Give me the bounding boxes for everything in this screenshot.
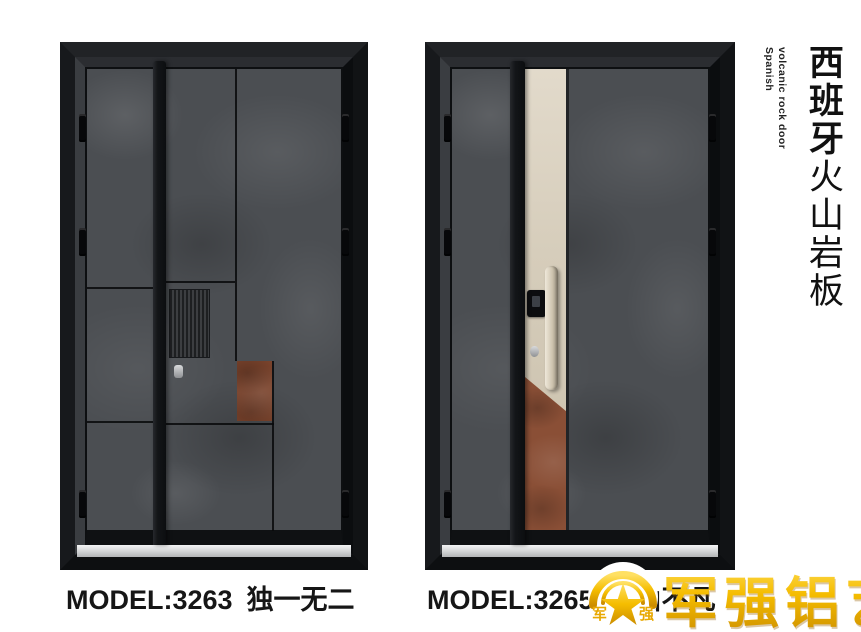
panel-seam bbox=[235, 69, 237, 361]
rust-lower-panel bbox=[525, 377, 566, 530]
hinge bbox=[709, 114, 716, 142]
emblem-char-left: 军 bbox=[592, 606, 607, 623]
hinge bbox=[342, 114, 349, 142]
brand-name: 军强铝艺 bbox=[663, 558, 861, 632]
side-label-zh-regular: 火山岩板 bbox=[804, 158, 843, 310]
hinge bbox=[79, 228, 86, 256]
lock-screen bbox=[532, 296, 540, 307]
panel-seam bbox=[272, 361, 274, 531]
brand-logo: 军 强 军强铝艺 bbox=[585, 558, 861, 632]
panel-seam bbox=[166, 423, 274, 425]
panel-seam bbox=[87, 287, 153, 289]
hinge bbox=[79, 114, 86, 142]
hinge bbox=[342, 490, 349, 518]
door-image-3263 bbox=[60, 42, 368, 570]
panel-seam bbox=[166, 281, 235, 283]
smart-lock bbox=[527, 290, 546, 317]
side-label-english: Spanish volcanic rock door bbox=[762, 47, 788, 149]
door-pull-handle bbox=[545, 266, 558, 390]
brand-emblem-icon: 军 强 bbox=[585, 561, 661, 632]
model-number: MODEL:3263 bbox=[66, 585, 233, 615]
hinge bbox=[444, 490, 451, 518]
caption-model-3263: MODEL:3263独一无二 bbox=[66, 578, 355, 617]
hinge bbox=[79, 490, 86, 518]
door-image-3265 bbox=[425, 42, 735, 570]
strip-edge-line bbox=[566, 69, 569, 530]
emblem-char-right: 强 bbox=[639, 606, 654, 623]
panel-seam bbox=[87, 421, 153, 423]
door-handle-bar bbox=[153, 61, 166, 545]
hinge bbox=[709, 490, 716, 518]
side-label-en-line2: volcanic rock door bbox=[775, 47, 788, 149]
product-name: 独一无二 bbox=[247, 585, 355, 615]
door-handle-bar bbox=[510, 61, 525, 545]
door-threshold bbox=[442, 545, 718, 557]
side-label-en-line1: Spanish bbox=[762, 47, 775, 149]
door-leaf bbox=[85, 67, 343, 545]
side-label-chinese: 西班牙火山岩板 bbox=[803, 44, 843, 310]
decor-plate bbox=[169, 289, 210, 358]
hinge bbox=[709, 228, 716, 256]
keyhole bbox=[174, 365, 183, 378]
hinge bbox=[444, 114, 451, 142]
door-leaf bbox=[450, 67, 710, 545]
poster-canvas: MODEL:3263独一无二 MODEL:3265层山不凡 Spanish vo… bbox=[0, 0, 861, 632]
rust-accent-tile bbox=[237, 361, 272, 421]
door-threshold bbox=[77, 545, 351, 557]
side-label-zh-bold: 西班牙 bbox=[804, 44, 843, 158]
hinge bbox=[444, 228, 451, 256]
model-number: MODEL:3265 bbox=[427, 585, 594, 615]
keyhole bbox=[530, 346, 539, 357]
hinge bbox=[342, 228, 349, 256]
